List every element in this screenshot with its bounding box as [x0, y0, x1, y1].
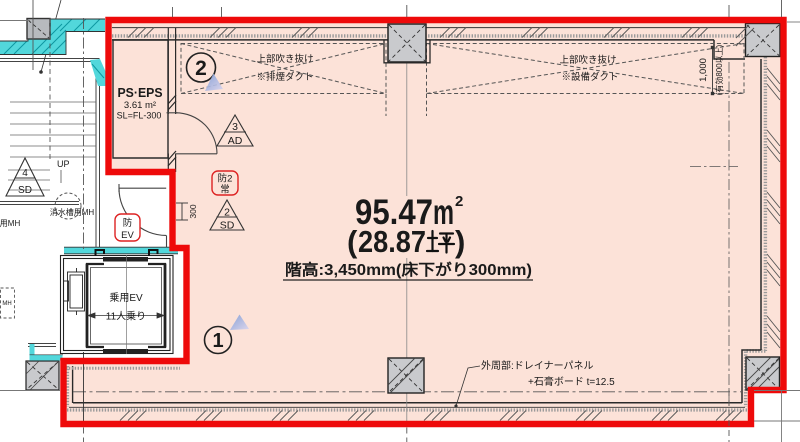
svg-text:消水槽用MH: 消水槽用MH [50, 207, 95, 217]
svg-text:2: 2 [224, 207, 230, 219]
svg-text:1,000: 1,000 [698, 58, 709, 82]
svg-text:上部吹き抜け: 上部吹き抜け [256, 53, 313, 65]
svg-text:上部吹き抜け: 上部吹き抜け [559, 54, 616, 66]
svg-text:): ) [455, 224, 465, 259]
svg-text:SL=FL-300: SL=FL-300 [117, 111, 162, 121]
svg-text:階高:3,450mm(床下がり300mm): 階高:3,450mm(床下がり300mm) [285, 260, 532, 279]
svg-text:(: ( [347, 224, 358, 259]
svg-text:MH: MH [2, 301, 11, 307]
svg-text:防2: 防2 [218, 173, 233, 185]
svg-text:SD: SD [18, 185, 32, 196]
svg-text:UP: UP [57, 159, 70, 169]
svg-text:用MH: 用MH [0, 219, 20, 228]
svg-text:※設備ダクト: ※設備ダクト [561, 71, 618, 83]
svg-text:(有効800以上): (有効800以上) [714, 44, 724, 95]
svg-text:2: 2 [455, 193, 463, 210]
svg-text:常: 常 [220, 184, 230, 196]
svg-text:m: m [433, 193, 454, 232]
svg-text:1: 1 [212, 330, 223, 352]
svg-text:AD: AD [228, 135, 243, 147]
svg-text:防: 防 [123, 217, 133, 229]
svg-text:11人乗り: 11人乗り [106, 311, 146, 323]
svg-text:PS·EPS: PS·EPS [118, 85, 163, 100]
svg-text:外周部:ドレイナーパネル: 外周部:ドレイナーパネル [481, 359, 593, 372]
svg-text:+石膏ボード t=12.5: +石膏ボード t=12.5 [528, 375, 615, 388]
svg-text:3.61 m²: 3.61 m² [124, 100, 156, 111]
svg-text:乗用EV: 乗用EV [109, 292, 143, 304]
svg-text:2: 2 [195, 57, 207, 80]
svg-text:3: 3 [232, 121, 238, 133]
svg-text:EV: EV [121, 230, 134, 241]
svg-text:※排煙ダクト: ※排煙ダクト [256, 71, 313, 83]
svg-text:28.87: 28.87 [358, 224, 426, 259]
svg-text:SD: SD [220, 220, 235, 232]
svg-text:4: 4 [22, 168, 28, 179]
svg-text:300: 300 [188, 204, 198, 218]
